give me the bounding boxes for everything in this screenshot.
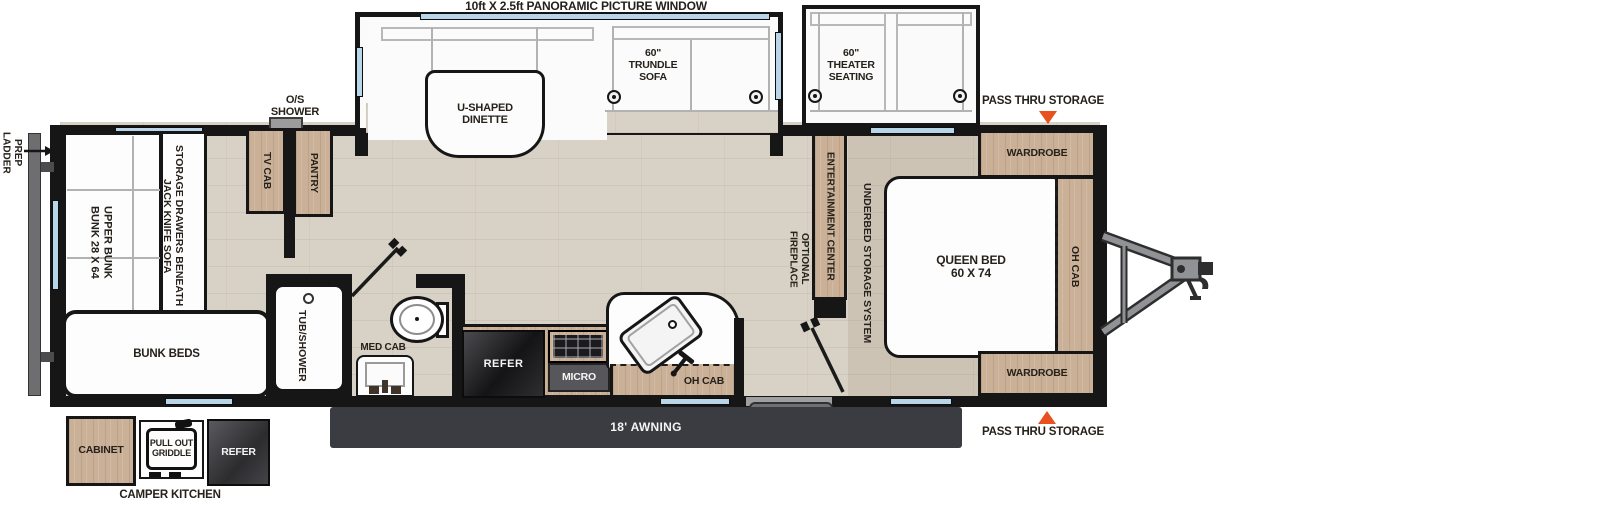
wardrobe-top: WARDROBE bbox=[978, 130, 1096, 178]
camper-refer: REFER bbox=[207, 419, 270, 486]
sink-drain bbox=[668, 320, 677, 329]
trundle-speaker-right bbox=[749, 90, 763, 104]
griddle-foot-left bbox=[149, 472, 161, 477]
theater-speaker-right bbox=[953, 89, 967, 103]
pass-thru-bottom-label: PASS THRU STORAGE bbox=[980, 426, 1106, 439]
window-bedroom-top bbox=[870, 127, 955, 134]
upper-bunk-label: BUNK 28 X 64 UPPER BUNK bbox=[88, 163, 134, 321]
wardrobe-top-label: WARDROBE bbox=[1007, 148, 1068, 160]
camper-kitchen-label: CAMPER KITCHEN bbox=[95, 489, 245, 502]
window-bottom-kitchen bbox=[660, 398, 730, 405]
pass-thru-bottom-marker bbox=[1038, 411, 1056, 424]
med-cab-label: MED CAB bbox=[348, 342, 418, 353]
tub-shower-label: TUB/SHOWER bbox=[296, 308, 322, 384]
shower-head-icon bbox=[303, 293, 314, 304]
pass-thru-top-marker bbox=[1039, 111, 1057, 124]
bunk-beds: BUNK BEDS bbox=[62, 310, 271, 398]
pull-out-griddle-label: PULL OUT GRIDDLE bbox=[150, 439, 193, 459]
os-shower-label: O/S SHOWER bbox=[255, 94, 335, 119]
pantry: PANTRY bbox=[293, 128, 333, 217]
theater-label: 60" THEATER SEATING bbox=[818, 48, 884, 83]
trundle-front-edge bbox=[605, 110, 778, 112]
underbed-storage-label: UNDERBED STORAGE SYSTEM bbox=[861, 170, 885, 356]
trundle-armrest-right bbox=[768, 26, 770, 110]
pantry-label: PANTRY bbox=[307, 153, 319, 193]
window-bottom-bunk bbox=[165, 398, 233, 405]
wardrobe-bottom-label: WARDROBE bbox=[1007, 368, 1068, 380]
trundle-speaker-left bbox=[607, 90, 621, 104]
theater-speaker-left bbox=[808, 89, 822, 103]
camper-refer-label: REFER bbox=[221, 447, 256, 459]
window-slide-left bbox=[356, 47, 363, 97]
oh-cab-bedroom: OH CAB bbox=[1054, 176, 1096, 357]
optional-fireplace-label: OPTIONAL FIREPLACE bbox=[780, 206, 810, 312]
pull-out-griddle: PULL OUT GRIDDLE bbox=[139, 420, 204, 479]
wardrobe-bottom: WARDROBE bbox=[978, 351, 1096, 396]
theater-front-edge bbox=[810, 110, 972, 112]
entertainment-center: ENTERTAINMENT CENTER bbox=[812, 133, 847, 300]
hitch-frame bbox=[1103, 236, 1213, 332]
vanity-basin bbox=[365, 362, 405, 387]
refer-label: REFER bbox=[484, 358, 524, 370]
window-rear bbox=[52, 200, 59, 290]
dinette-table: U-SHAPED DINETTE bbox=[425, 70, 545, 158]
cooktop bbox=[548, 330, 608, 363]
bed-overlap-dashline bbox=[1055, 181, 1058, 353]
entertainment-wall-stub bbox=[814, 298, 846, 318]
jack-knife-sofa-label: JACK KNIFE SOFA STORAGE DRAWERS BENEATH bbox=[161, 137, 207, 315]
theater-console bbox=[884, 12, 898, 112]
ladder-prep-label: LADDER PREP bbox=[0, 122, 24, 184]
queen-bed: QUEEN BED 60 X 74 bbox=[884, 176, 1058, 358]
window-slide-right bbox=[775, 32, 782, 100]
trundle-label: 60" TRUNDLE SOFA bbox=[614, 48, 692, 83]
queen-bed-label: QUEEN BED 60 X 74 bbox=[936, 254, 1006, 281]
micro-label: MICRO bbox=[562, 372, 596, 384]
awning-bar: 18' AWNING bbox=[330, 407, 962, 448]
trundle-back-cushion bbox=[612, 26, 770, 40]
dinette-back-cushion bbox=[381, 27, 594, 41]
kitchen-divider-right bbox=[734, 318, 744, 398]
tv-cabinet-label: TV CAB bbox=[260, 152, 272, 189]
microwave: MICRO bbox=[548, 363, 610, 392]
awning-label: 18' AWNING bbox=[610, 421, 681, 434]
bumper-bracket-top bbox=[41, 162, 54, 172]
tv-cabinet: TV CAB bbox=[246, 128, 286, 214]
bumper-bracket-bottom bbox=[41, 352, 54, 362]
pass-thru-top-label: PASS THRU STORAGE bbox=[980, 95, 1106, 108]
oh-cab-bedroom-label: OH CAB bbox=[1069, 246, 1081, 287]
camper-cabinet: CABINET bbox=[66, 416, 136, 486]
bunk-beds-label: BUNK BEDS bbox=[133, 348, 200, 361]
oh-cab-kitchen-label: OH CAB bbox=[672, 376, 736, 388]
rear-bumper bbox=[28, 133, 41, 396]
toilet-drain-dot bbox=[415, 317, 419, 321]
window-bottom-bedroom bbox=[890, 398, 952, 405]
griddle-foot-right bbox=[169, 472, 181, 477]
entertainment-center-label: ENTERTAINMENT CENTER bbox=[824, 138, 836, 296]
dinette-label: U-SHAPED DINETTE bbox=[457, 102, 513, 127]
refrigerator: REFER bbox=[462, 330, 545, 398]
griddle-icon-frame: PULL OUT GRIDDLE bbox=[146, 428, 197, 470]
camper-cabinet-label: CABINET bbox=[78, 445, 123, 457]
floorplan-diagram: 10ft X 2.5ft PANORAMIC PICTURE WINDOW U-… bbox=[0, 0, 1600, 509]
window-slide-top bbox=[420, 13, 770, 20]
